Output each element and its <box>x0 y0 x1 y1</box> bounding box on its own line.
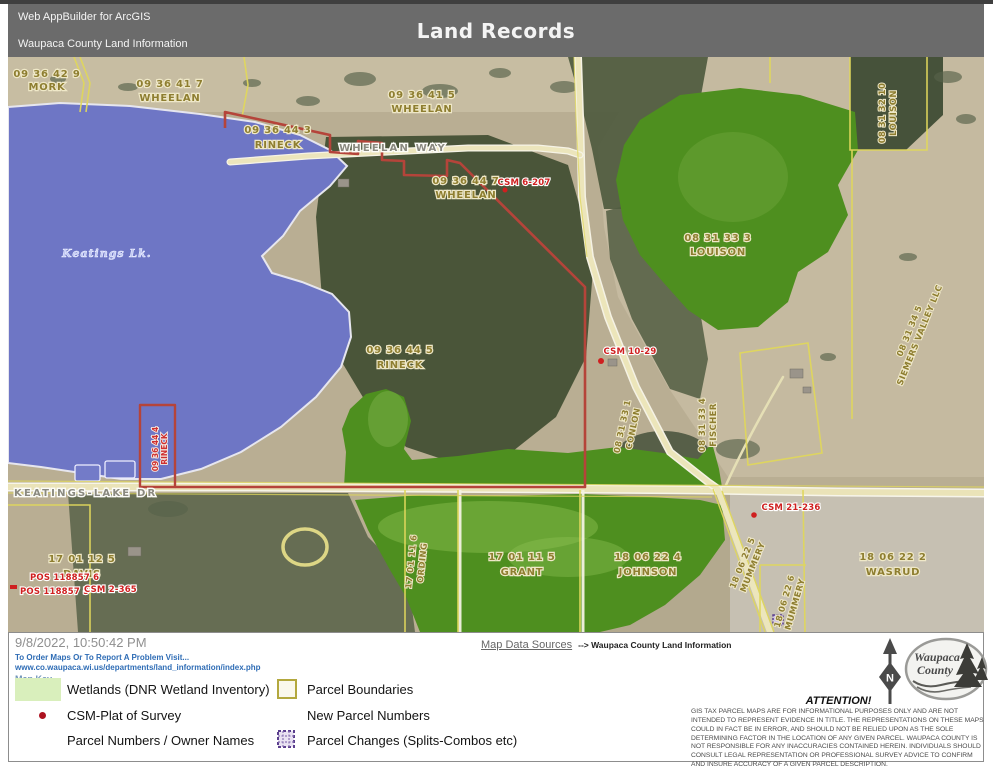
legend-label-parcel-changes: Parcel Changes (Splits-Combos etc) <box>307 733 517 748</box>
parcel-label: 08 31 33 3 <box>684 233 751 244</box>
parcel-label: FISCHER <box>709 403 719 447</box>
parcel-label: 08 31 32 10 <box>878 83 888 144</box>
survey-point <box>751 512 757 518</box>
survey-label: CSM 2-365 <box>84 585 137 595</box>
parcel-label: 09 36 44 5 <box>366 345 433 356</box>
parcel-label: LOUISON <box>889 90 899 136</box>
survey-label: CSM 6-207 <box>498 178 551 188</box>
parcel-label: 17 01 12 5 <box>48 554 115 565</box>
legend-label-wetlands: Wetlands (DNR Wetland Inventory) <box>67 682 270 697</box>
parcel-label: WHEELAN <box>139 93 200 104</box>
parcel-label: 09 36 42 9 <box>13 69 80 80</box>
survey-point <box>503 188 508 193</box>
order-maps-url[interactable]: www.co.waupaca.wi.us/departments/land_in… <box>15 663 261 672</box>
legend-label-parcel-numbers: Parcel Numbers / Owner Names <box>67 733 254 748</box>
parcel-label: LOUISON <box>690 247 746 258</box>
parcel-label: 18 06 22 4 <box>614 552 681 563</box>
parcel-label: JOHNSON <box>618 567 678 578</box>
parcel-label: MORK <box>28 82 66 93</box>
lake-label: Keatings Lk. <box>61 247 152 260</box>
legend-swatch-wetlands <box>15 678 61 701</box>
parcel-label: GRANT <box>501 567 544 578</box>
parcel-label: 09 36 44 7 <box>432 176 499 187</box>
attention-text: GIS TAX PARCEL MAPS ARE FOR INFORMATIONA… <box>691 708 987 770</box>
survey-label: POS 118857 6 <box>30 573 99 583</box>
parcel-label: 18 06 22 2 <box>859 552 926 563</box>
legend-swatch-parcel-boundaries <box>277 679 297 699</box>
legend-label-new-parcel-numbers: New Parcel Numbers <box>307 708 430 723</box>
parcel-label: WHEELAN <box>391 104 452 115</box>
parcel-label: 09 36 41 5 <box>388 90 455 101</box>
attention-title: ATTENTION! <box>691 695 986 707</box>
survey-point <box>10 585 17 589</box>
page-title: Land Records <box>8 19 984 43</box>
survey-point <box>598 358 604 364</box>
legend-label-parcel-boundaries: Parcel Boundaries <box>307 682 413 697</box>
logo-text-line1: Waupaca <box>914 650 960 664</box>
map-data-sources-value: --> Waupaca County Land Information <box>578 640 731 650</box>
survey-label: CSM 10-29 <box>604 347 657 357</box>
parcel-label: 17 01 11 5 <box>488 552 555 563</box>
map-data-sources-link[interactable]: Map Data Sources <box>481 639 572 651</box>
road-label-keatings-lake-dr: KEATINGS-LAKE DR <box>14 488 157 499</box>
parcel-label: RINECK <box>377 360 424 371</box>
parcel-label: 09 36 44 4 <box>151 427 160 471</box>
legend-swatch-parcel-changes <box>277 730 295 748</box>
footer-panel: 9/8/2022, 10:50:42 PM To Order Maps Or T… <box>8 632 984 762</box>
parcel-label: 08 31 33 4 <box>698 398 708 452</box>
parcel-label: WASRUD <box>866 567 920 578</box>
survey-label: POS 118857 5 <box>20 587 89 597</box>
map-canvas[interactable]: Keatings Lk. WHEELAN WAY KEATINGS-LAKE D… <box>8 57 984 632</box>
road-label-wheelan-way: WHEELAN WAY <box>339 143 447 154</box>
parcel-label: RINECK <box>255 140 302 151</box>
header-bar: Web AppBuilder for ArcGIS Waupaca County… <box>8 4 984 57</box>
order-maps-link-line1[interactable]: To Order Maps Or To Report A Problem Vis… <box>15 653 189 662</box>
legend-swatch-csm-dot <box>39 712 46 719</box>
parcel-label: 09 36 41 7 <box>136 79 203 90</box>
north-label: N <box>886 673 894 685</box>
parcel-label: WHEELAN <box>435 190 496 201</box>
logo-text-line2: County <box>917 663 954 677</box>
timestamp: 9/8/2022, 10:50:42 PM <box>15 635 147 650</box>
parcel-label: RINECK <box>160 432 169 464</box>
legend-label-csm: CSM-Plat of Survey <box>67 708 181 723</box>
survey-label: CSM 21-236 <box>761 503 820 513</box>
parcel-label: 09 36 44 3 <box>244 125 311 136</box>
